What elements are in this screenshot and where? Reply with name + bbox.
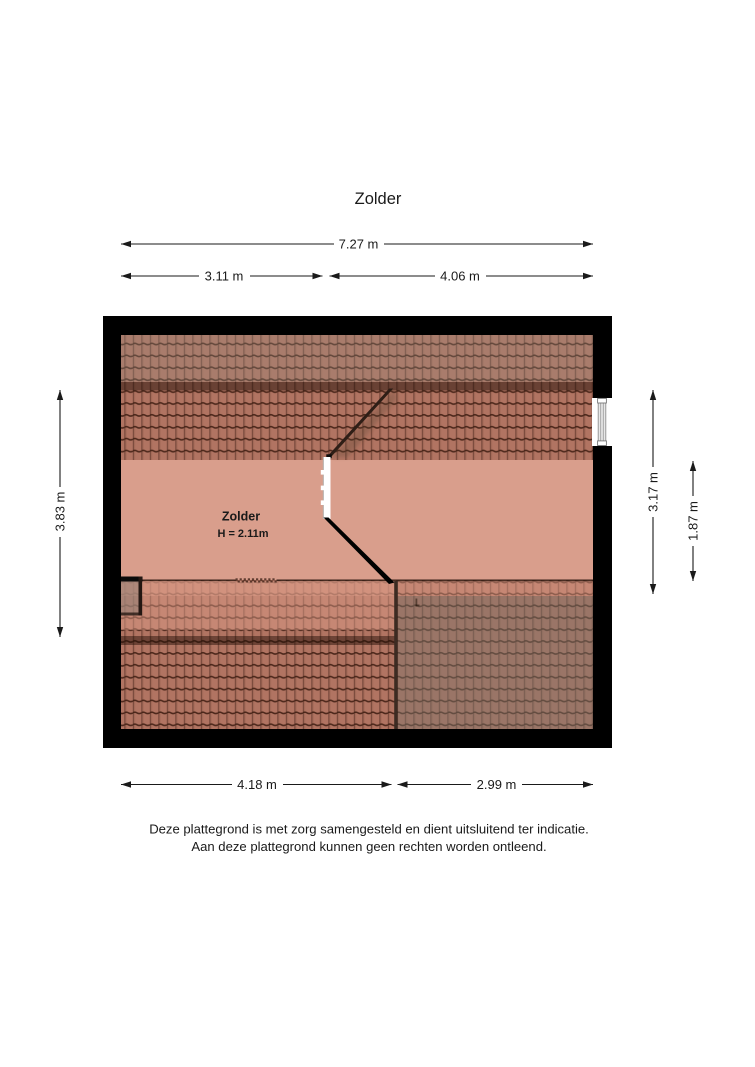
- svg-text:H = 2.11m: H = 2.11m: [217, 528, 268, 540]
- svg-text:4.06 m: 4.06 m: [440, 269, 480, 284]
- svg-text:Aan deze plattegrond kunnen ge: Aan deze plattegrond kunnen geen rechten…: [191, 839, 546, 854]
- svg-text:1.87 m: 1.87 m: [686, 501, 701, 541]
- svg-text:Zolder: Zolder: [222, 510, 260, 524]
- svg-text:7.27 m: 7.27 m: [339, 237, 379, 252]
- svg-text:4.18 m: 4.18 m: [237, 777, 277, 792]
- svg-text:Deze plattegrond is met zorg s: Deze plattegrond is met zorg samengestel…: [149, 822, 589, 837]
- svg-text:Zolder: Zolder: [355, 190, 402, 208]
- svg-text:2.99 m: 2.99 m: [477, 777, 517, 792]
- svg-text:3.83 m: 3.83 m: [53, 492, 68, 532]
- svg-text:3.17 m: 3.17 m: [646, 472, 661, 512]
- svg-text:3.11 m: 3.11 m: [205, 269, 244, 284]
